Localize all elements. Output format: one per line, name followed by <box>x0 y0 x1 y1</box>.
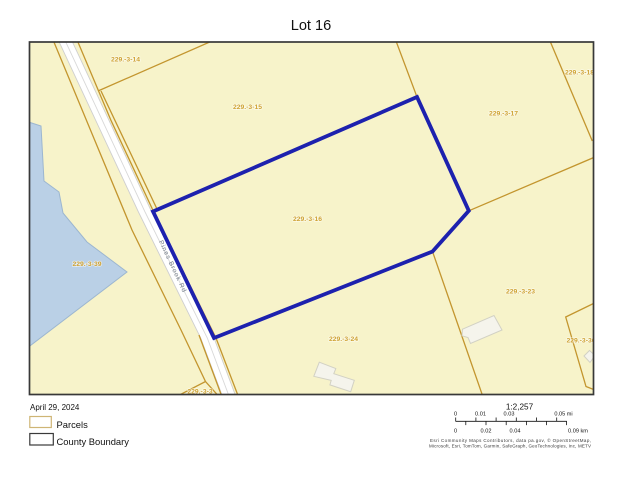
svg-text:Esri Community Maps Contributo: Esri Community Maps Contributors, data p… <box>430 437 591 443</box>
svg-text:April 29, 2024: April 29, 2024 <box>30 403 80 412</box>
svg-text:229.-3-23: 229.-3-23 <box>506 289 535 296</box>
svg-text:1:2,257: 1:2,257 <box>506 403 534 412</box>
svg-text:Microsoft, Esri, TomTom, Garmi: Microsoft, Esri, TomTom, Garmin, SafeGra… <box>429 444 591 449</box>
svg-text:0.02: 0.02 <box>481 429 492 435</box>
svg-text:229.-3-16: 229.-3-16 <box>293 216 322 223</box>
svg-text:0.05 mi: 0.05 mi <box>554 412 572 418</box>
svg-text:0: 0 <box>454 412 457 418</box>
svg-text:229.-3-17: 229.-3-17 <box>489 111 518 118</box>
svg-text:229.-3-36: 229.-3-36 <box>566 338 595 345</box>
svg-text:229.-3-18: 229.-3-18 <box>565 70 594 77</box>
svg-text:County Boundary: County Boundary <box>57 436 130 447</box>
svg-text:229.-3-14: 229.-3-14 <box>111 57 140 64</box>
svg-text:0.01: 0.01 <box>475 412 486 418</box>
svg-text:0: 0 <box>454 429 457 435</box>
svg-text:0.09 km: 0.09 km <box>568 429 588 435</box>
svg-text:0.03: 0.03 <box>504 412 515 418</box>
svg-text:0.04: 0.04 <box>510 429 521 435</box>
svg-text:229.-3-39: 229.-3-39 <box>72 261 101 268</box>
svg-text:Parcels: Parcels <box>57 419 89 430</box>
svg-text:Lot 16: Lot 16 <box>291 18 332 34</box>
svg-text:229.-3-24: 229.-3-24 <box>329 336 358 343</box>
svg-text:229.-3-15: 229.-3-15 <box>233 104 262 111</box>
